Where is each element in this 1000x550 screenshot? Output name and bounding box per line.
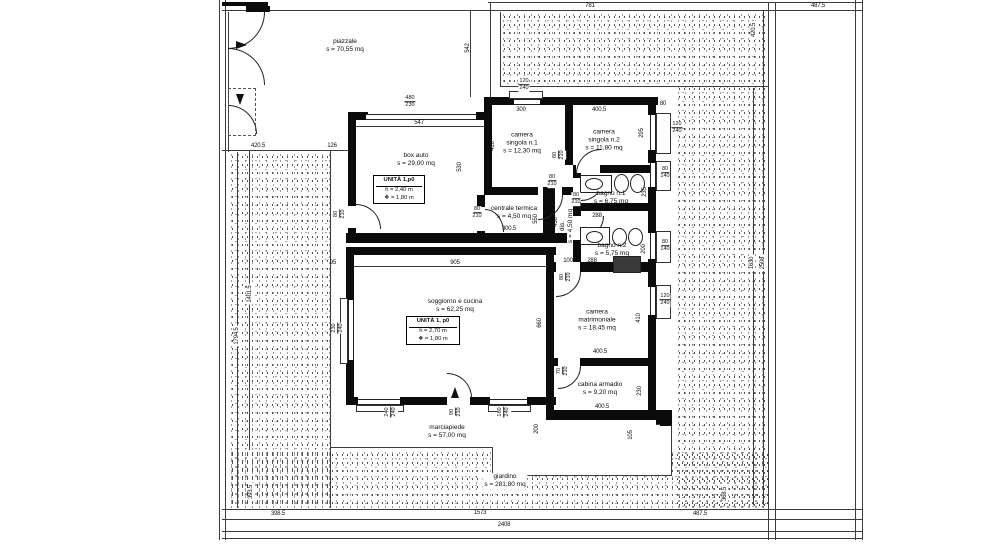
dimension-label: 288 <box>587 258 596 264</box>
boundary-line <box>855 0 856 540</box>
dimension-label: 398.5 <box>269 511 287 517</box>
dimension-label: 550 <box>533 214 539 223</box>
wall <box>565 105 573 165</box>
dimension-label: 1401.5 <box>247 283 253 304</box>
dimension-label: 80210 <box>559 272 573 281</box>
boundary-line <box>222 531 862 532</box>
dim-numerator: 120 <box>659 293 670 300</box>
boundary-line <box>356 126 484 127</box>
boundary-line <box>222 538 862 539</box>
room-label: bagno n.1s = 6,75 mq <box>594 190 628 206</box>
dimension-label: 400.5 <box>593 349 607 355</box>
dimension-label: 2508 <box>760 255 766 272</box>
boundary-line <box>219 0 220 540</box>
room-label-line: bagno n.1 <box>594 190 628 198</box>
boundary-line <box>488 2 862 3</box>
room-label: soggiorno e cucinas = 62,25 mq <box>428 298 483 314</box>
boundary-line <box>470 10 471 97</box>
boundary-line <box>775 3 776 540</box>
wall <box>477 195 485 207</box>
window-sill <box>509 91 543 99</box>
dim-numerator: 80 <box>333 210 340 218</box>
wall <box>546 262 556 272</box>
wall <box>346 233 567 243</box>
dimension-label: 80210 <box>547 174 556 188</box>
dim-denominator: 240 <box>519 86 528 92</box>
boundary-line <box>492 447 493 475</box>
dim-denominator: 210 <box>547 182 556 188</box>
window-sill <box>656 113 671 154</box>
dim-denominator: 140 <box>660 174 669 180</box>
dimension-label: 420.5 <box>249 143 267 149</box>
dim-numerator: 120 <box>518 78 529 85</box>
dim-denominator: 240 <box>660 301 669 307</box>
dimension-label: 70210 <box>556 366 570 375</box>
dimension-label: 393.5 <box>248 483 254 501</box>
room-label-line: s = 12,30 mq <box>503 147 541 155</box>
wall <box>346 247 556 255</box>
wall <box>477 231 485 243</box>
wall <box>580 358 656 366</box>
dimension-label: 80140 <box>660 166 669 180</box>
dimension-label: 180240 <box>497 406 511 417</box>
dimension-label: 542 <box>465 43 471 52</box>
door-opening <box>447 397 470 405</box>
room-label: cameramatrimoniales = 18,45 mq <box>578 308 616 331</box>
dimension-label: 400.5 <box>595 404 609 410</box>
room-label-line: s = 4,50 mq <box>491 213 537 221</box>
dim-numerator: 80 <box>552 151 559 159</box>
room-label: camerasingola n.2s = 11,80 mq <box>585 128 622 151</box>
pedestrian-gate-arrow <box>236 94 244 105</box>
boundary-line <box>753 88 754 505</box>
dimension-label: 230240 <box>331 322 345 333</box>
floor-plan-drawing: UNITÀ 1,p0 h = 2,40 m ❖ = 1,80 m UNITÀ 1… <box>0 0 1000 550</box>
room-label-line: s = 4,50 mq <box>567 209 575 243</box>
window <box>650 163 656 187</box>
dimension-label: 480230 <box>404 95 415 109</box>
dim-numerator: 90 <box>449 408 456 416</box>
dimension-label: 120240 <box>659 293 670 307</box>
room-label-line: box auto <box>397 152 435 160</box>
room-label-line: s = 5,75 mq <box>595 250 629 258</box>
dim-numerator: 480 <box>404 95 415 102</box>
room-label-line: s = 6,75 mq <box>594 198 628 206</box>
dim-denominator: 230 <box>405 103 414 109</box>
dimension-label: 95 <box>330 260 336 266</box>
bathroom-fixture <box>586 231 603 243</box>
dimension-label: 80140 <box>660 239 669 253</box>
wall <box>546 358 558 366</box>
gate-entry-arrow <box>236 41 247 49</box>
dim-denominator: 210 <box>560 150 566 159</box>
wall <box>540 97 658 105</box>
unit-title: UNITÀ 1, p0 <box>409 317 457 328</box>
dimension-label: 530 <box>457 162 463 171</box>
unit-height: h = 2,40 m <box>376 187 422 195</box>
room-label-line: dis. <box>559 209 567 243</box>
dimension-label: 126 <box>325 143 338 149</box>
window <box>358 399 400 405</box>
unit-box-garage: UNITÀ 1,p0 h = 2,40 m ❖ = 1,80 m <box>373 175 425 204</box>
window <box>514 99 540 105</box>
dim-numerator: 80 <box>572 192 580 199</box>
dimension-label: 288 <box>592 213 601 219</box>
shower <box>613 256 641 273</box>
room-label: box autos = 29,00 mq <box>397 152 435 168</box>
room-label: camerasingola n.1s = 12,30 mq <box>503 131 541 154</box>
room-label-line: s = 57,00 mq <box>428 432 466 440</box>
boundary-line <box>500 86 768 87</box>
wall <box>660 418 672 426</box>
room-label-line: matrimoniale <box>578 316 616 324</box>
room-label: dis.s = 4,50 mq <box>559 209 575 243</box>
room-label-line: s = 70,55 mq <box>326 46 364 54</box>
dimension-label: 120240 <box>518 78 529 92</box>
dim-numerator: 70 <box>556 367 563 375</box>
boundary-line <box>500 12 501 86</box>
unit-avg-height: ❖ = 1,80 m <box>409 336 457 344</box>
bathroom-fixture <box>585 178 603 190</box>
room-label: cabina armadios = 9,20 mq <box>578 381 622 397</box>
dimension-label: 430 <box>553 217 559 226</box>
room-label-line: s = 11,80 mq <box>585 144 622 152</box>
plan-canvas: UNITÀ 1,p0 h = 2,40 m ❖ = 1,80 m UNITÀ 1… <box>0 0 1000 550</box>
boundary-line <box>225 0 226 540</box>
boundary-line <box>671 424 672 475</box>
room-label-line: s = 9,20 mq <box>578 389 622 397</box>
dimension-label: 80 <box>660 101 666 107</box>
room-label-line: bagno n.2 <box>595 242 629 250</box>
dim-denominator: 140 <box>660 247 669 253</box>
dim-denominator: 240 <box>505 407 511 416</box>
dimension-label: 80210 <box>333 209 347 218</box>
dim-denominator: 210 <box>567 272 573 281</box>
wall <box>648 97 656 115</box>
room-label-line: s = 18,45 mq <box>578 324 616 332</box>
main-entrance-arrow <box>451 387 459 398</box>
wall <box>546 255 554 418</box>
room-label: centrale termicas = 4,50 mq <box>491 205 537 221</box>
window <box>650 287 656 315</box>
dimension-label: 487.5 <box>811 3 825 9</box>
dimension-label: 100 <box>563 258 572 264</box>
dim-denominator: 240 <box>392 407 398 416</box>
dimension-label: 105 <box>628 430 634 439</box>
dim-denominator: 210 <box>472 214 481 220</box>
unit-box-living: UNITÀ 1, p0 h = 2,70 m ❖ = 1,80 m <box>406 316 460 345</box>
dimension-label: 80210 <box>571 192 580 206</box>
sidewalk-area <box>492 447 670 474</box>
wall <box>600 165 656 173</box>
room-label-line: camera <box>578 308 616 316</box>
wall <box>348 112 356 206</box>
wall <box>470 397 490 405</box>
dim-numerator: 230 <box>331 322 338 333</box>
window <box>650 233 656 259</box>
dimension-label: 200 <box>534 424 540 433</box>
boundary-line <box>490 3 491 97</box>
dim-numerator: 80 <box>661 166 669 173</box>
dimension-label: 90210 <box>449 407 463 416</box>
window <box>490 399 527 405</box>
dim-denominator: 240 <box>339 323 345 332</box>
dim-denominator: 210 <box>571 200 580 206</box>
boundary-line <box>222 519 862 520</box>
dimension-label: 905 <box>450 260 459 266</box>
dimension-label: 1573 <box>472 510 489 516</box>
dimension-label: 400.5 <box>592 107 606 113</box>
room-label-line: s = 29,00 mq <box>397 160 435 168</box>
boundary-line <box>768 3 769 540</box>
boundary-line <box>222 509 862 510</box>
dim-numerator: 80 <box>548 174 556 181</box>
dimension-label: 235 <box>642 187 648 196</box>
dim-numerator: 80 <box>661 239 669 246</box>
room-label-line: centrale termica <box>491 205 537 213</box>
dimension-label: 410 <box>490 141 496 150</box>
garden-hatch <box>500 12 675 86</box>
dimension-label: 781 <box>585 3 594 9</box>
dim-numerator: 80 <box>473 206 481 213</box>
room-label-line: marciapiede <box>428 424 466 432</box>
dimension-label: 240240 <box>384 406 398 417</box>
dimension-label: 200 <box>641 244 647 253</box>
room-label-line: soggiorno e cucina <box>428 298 483 306</box>
room-label-line: cabina armadio <box>578 381 622 389</box>
wall <box>648 315 656 420</box>
room-label: marciapiedes = 57,00 mq <box>428 424 466 440</box>
dim-numerator: 80 <box>559 273 566 281</box>
wall <box>648 150 656 163</box>
room-label-line: piazzale <box>326 38 364 46</box>
wall <box>346 360 354 397</box>
room-label-line: s = 281,80 mq <box>484 481 525 489</box>
dim-numerator: 120 <box>671 121 682 128</box>
wall <box>346 247 354 300</box>
room-label-line: s = 62,25 mq <box>428 306 483 314</box>
dimension-label: 1794.5 <box>234 325 240 346</box>
window <box>650 115 656 150</box>
room-label-line: singola n.2 <box>585 136 622 144</box>
dimension-label: 368.5 <box>722 485 728 503</box>
room-label-line: singola n.1 <box>503 139 541 147</box>
dimension-label: 300 <box>516 107 525 113</box>
room-label: bagno n.2s = 5,75 mq <box>595 242 629 258</box>
dimension-label: 120240 <box>671 121 682 135</box>
dimension-label: 420.5 <box>751 21 757 39</box>
room-label-line: camera <box>585 128 622 136</box>
dimension-label: 410 <box>636 313 642 322</box>
room-label-line: giardino <box>484 473 525 481</box>
door-swing-arc <box>576 149 601 174</box>
dim-denominator: 210 <box>564 366 570 375</box>
dimension-label: 487.5 <box>691 511 709 517</box>
unit-height: h = 2,70 m <box>409 328 457 336</box>
dim-denominator: 240 <box>672 129 681 135</box>
unit-title: UNITÀ 1,p0 <box>376 176 422 187</box>
dimension-label: 2408 <box>496 522 513 528</box>
boundary-line <box>222 10 862 11</box>
room-label: piazzales = 70,55 mq <box>326 38 364 54</box>
wall <box>546 410 672 420</box>
door-swing-arc <box>356 204 381 229</box>
dim-numerator: 180 <box>497 406 504 417</box>
dim-denominator: 210 <box>457 407 463 416</box>
dimension-label: 230 <box>637 386 643 395</box>
wall <box>346 397 358 405</box>
unit-avg-height: ❖ = 1,80 m <box>376 195 422 203</box>
dimension-label: 300.5 <box>502 226 516 232</box>
dimension-label: 80210 <box>552 150 566 159</box>
room-label: giardinos = 281,80 mq <box>482 473 527 489</box>
window <box>348 300 354 360</box>
dimension-label: 80210 <box>472 206 481 220</box>
dimension-label: 295 <box>639 128 645 137</box>
wall <box>400 397 447 405</box>
dim-denominator: 210 <box>341 209 347 218</box>
boundary-line <box>354 266 546 267</box>
door-swing-arc <box>228 48 265 85</box>
dimension-label: 660 <box>537 318 543 327</box>
boundary-line <box>862 0 863 540</box>
dimension-label: 547 <box>414 120 423 126</box>
room-label-line: camera <box>503 131 541 139</box>
wall <box>484 187 538 195</box>
dimension-label: 1630 <box>749 255 755 272</box>
dim-numerator: 240 <box>384 406 391 417</box>
boundary-line <box>330 447 493 448</box>
